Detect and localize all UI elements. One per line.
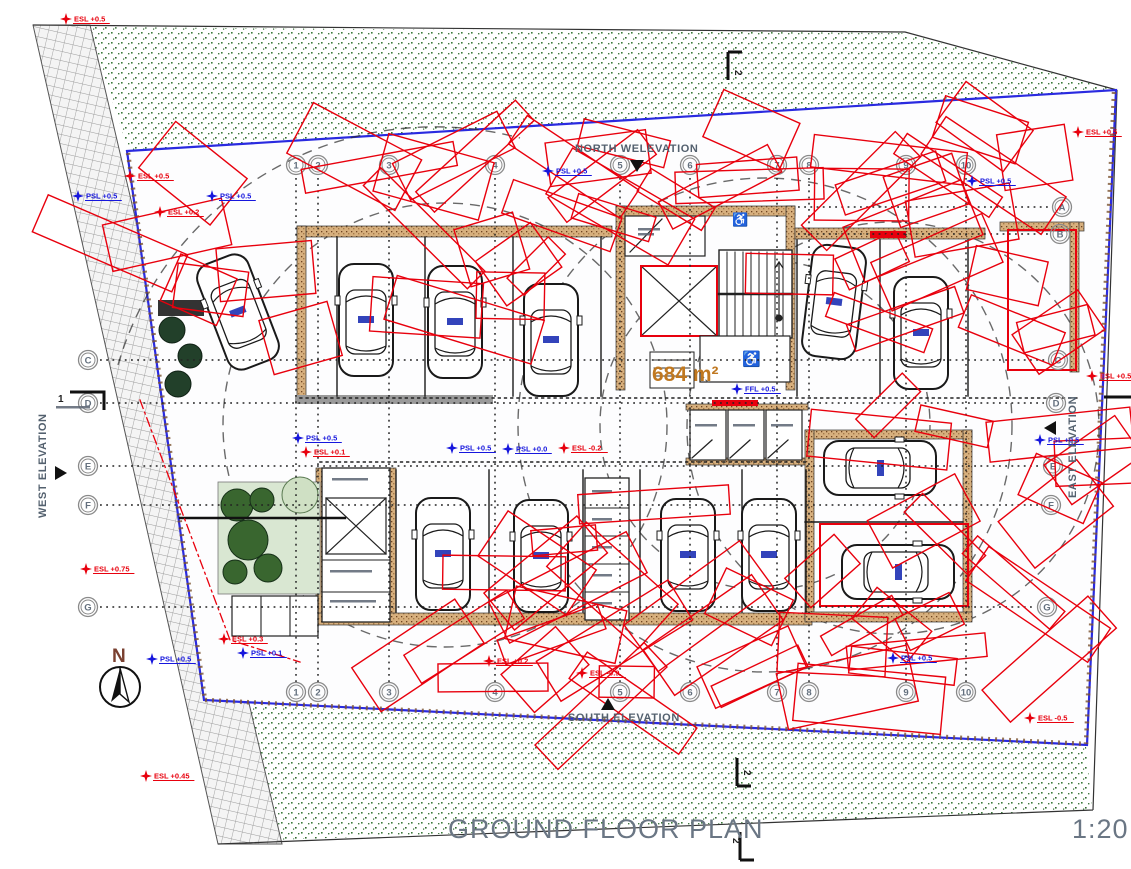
grid-bubble: 10 [957, 683, 976, 702]
svg-text:ESL +0.3: ESL +0.3 [232, 635, 263, 644]
grid-bubble: 3 [380, 683, 399, 702]
svg-text:6: 6 [687, 687, 692, 698]
plan-drawing: ♿ ♿ [0, 0, 1131, 869]
car [738, 499, 800, 611]
east-elevation-label: EAST ELEVATION [1067, 396, 1079, 498]
wheelchair-icon-upper: ♿ [732, 212, 748, 227]
svg-text:PSL +0.5: PSL +0.5 [901, 654, 932, 663]
svg-text:PSL +0.5: PSL +0.5 [306, 434, 337, 443]
grid-bubble: 9 [897, 683, 916, 702]
svg-text:ESL +0.45: ESL +0.45 [154, 772, 190, 781]
grid-bubble: C [79, 351, 98, 370]
grid-bubble: G [1038, 598, 1057, 617]
grid-bubble: 5 [611, 683, 630, 702]
sheet-title: GROUND FLOOR PLAN [448, 814, 764, 844]
car [890, 277, 952, 389]
svg-text:PSL +0.5: PSL +0.5 [980, 177, 1011, 186]
svg-text:B: B [1057, 229, 1064, 240]
car [412, 498, 474, 610]
grid-bubble: D [1047, 394, 1066, 413]
svg-text:ESL +0.5: ESL +0.5 [1100, 372, 1131, 381]
svg-text:ESL -0.9: ESL -0.9 [590, 669, 619, 678]
ground-floor-plan-sheet: ♿ ♿ [0, 0, 1131, 869]
grid-bubble: 8 [800, 156, 819, 175]
svg-text:ESL +0.2: ESL +0.2 [168, 208, 199, 217]
grid-bubble: G [79, 598, 98, 617]
svg-text:F: F [85, 500, 91, 511]
grid-bubble: F [79, 496, 98, 515]
grid-bubble: B [1051, 225, 1070, 244]
car [520, 284, 582, 396]
svg-text:ESL -0.5: ESL -0.5 [1038, 714, 1067, 723]
svg-text:8: 8 [806, 687, 811, 698]
svg-text:1: 1 [58, 394, 64, 405]
svg-text:ESL +0.75: ESL +0.75 [94, 565, 130, 574]
svg-text:10: 10 [961, 687, 972, 698]
svg-text:ESL +0.2: ESL +0.2 [497, 657, 528, 666]
svg-text:3: 3 [386, 687, 391, 698]
grid-bubble: 1 [287, 683, 306, 702]
spot-level: ESL +0.45 [140, 770, 194, 782]
west-elevation-marker [55, 466, 67, 480]
svg-text:4: 4 [492, 687, 498, 698]
svg-text:6: 6 [687, 160, 692, 171]
svg-text:FFL +0.5: FFL +0.5 [745, 385, 776, 394]
svg-text:PSL +0.1: PSL +0.1 [251, 649, 282, 658]
site-boundary [127, 90, 1116, 745]
grid-bubble: 2 [309, 683, 328, 702]
svg-text:ESL +0.5: ESL +0.5 [1086, 128, 1117, 137]
svg-text:PSL +0.0: PSL +0.0 [516, 445, 547, 454]
svg-text:5: 5 [617, 687, 623, 698]
spot-level: ESL +0.5 [60, 13, 110, 25]
svg-text:G: G [84, 602, 91, 613]
west-elevation-label: WEST ELEVATION [37, 413, 49, 518]
compass-n-label: N [112, 646, 126, 667]
car [842, 541, 954, 603]
svg-text:PSL +0.5: PSL +0.5 [556, 167, 587, 176]
svg-text:2: 2 [732, 70, 743, 76]
svg-text:PSL +0.5: PSL +0.5 [160, 655, 191, 664]
grid-bubble: 8 [800, 683, 819, 702]
svg-text:PSL +0.5: PSL +0.5 [86, 192, 117, 201]
svg-text:1: 1 [293, 160, 299, 171]
svg-text:9: 9 [903, 687, 908, 698]
spot-level: PSL +0.5 [146, 653, 196, 665]
wheelchair-icon: ♿ [742, 350, 761, 368]
svg-text:PSL +0.5: PSL +0.5 [460, 444, 491, 453]
north-arrow: N [100, 646, 140, 707]
grid-bubble: 7 [768, 683, 787, 702]
svg-text:5: 5 [617, 160, 623, 171]
sheet-scale: 1:20 [1072, 814, 1129, 844]
svg-text:PSL +0.5: PSL +0.5 [220, 192, 251, 201]
svg-text:ESL +0.1: ESL +0.1 [314, 448, 345, 457]
south-elevation-label: SOUTH ELEVATION [568, 712, 680, 724]
north-elevation-label: NORTH WELEVATION [575, 143, 698, 155]
svg-text:2: 2 [741, 770, 752, 776]
svg-text:ESL +0.5: ESL +0.5 [138, 172, 169, 181]
svg-text:7: 7 [774, 687, 779, 698]
grid-bubble: D [79, 394, 98, 413]
car [824, 437, 936, 499]
svg-text:ESL +0.5: ESL +0.5 [74, 15, 105, 24]
svg-text:ESL -0.2: ESL -0.2 [572, 444, 601, 453]
svg-text:D: D [1053, 398, 1060, 409]
spot-level: ESL +0.75 [80, 563, 134, 575]
area-label: 684 m² [652, 363, 719, 386]
svg-text:1: 1 [293, 687, 299, 698]
svg-text:E: E [85, 461, 91, 472]
svg-text:2: 2 [315, 687, 320, 698]
svg-text:G: G [1043, 602, 1050, 613]
svg-text:3: 3 [386, 160, 391, 171]
svg-text:C: C [85, 355, 92, 366]
grid-bubble: E [79, 457, 98, 476]
